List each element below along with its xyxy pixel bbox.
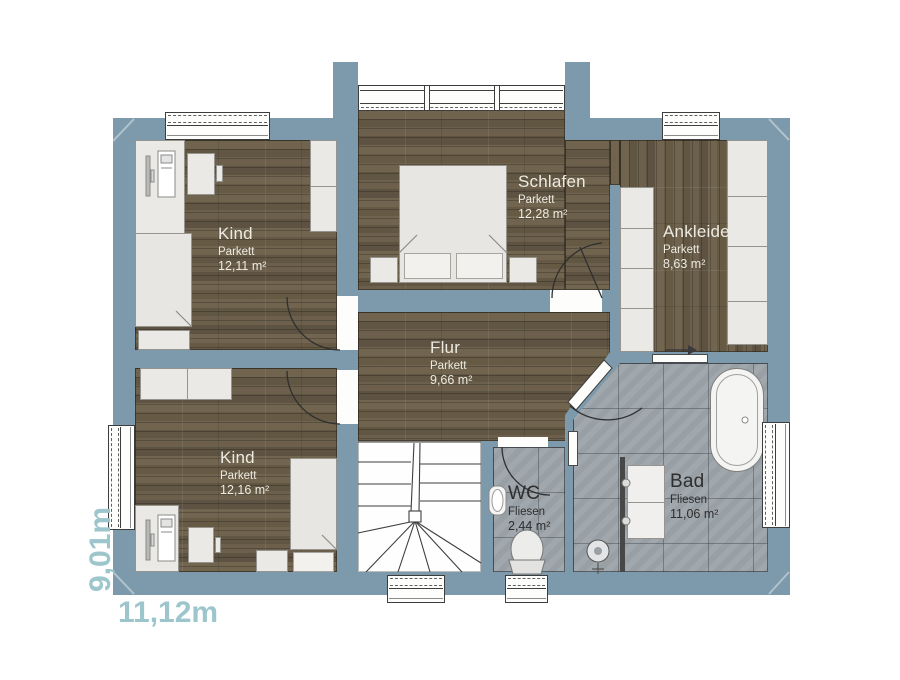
wardrobe-divider bbox=[621, 308, 653, 309]
room-area: 12,11 m² bbox=[218, 259, 266, 274]
desk-table bbox=[187, 153, 215, 195]
room-name: WC bbox=[508, 482, 550, 505]
window bbox=[505, 575, 548, 603]
room-floor-type: Parkett bbox=[430, 359, 472, 373]
window-glass bbox=[664, 125, 718, 136]
chair bbox=[216, 165, 223, 182]
bay-pillar-left bbox=[333, 62, 358, 118]
window-mullion bbox=[424, 86, 430, 110]
room-floor-type: Parkett bbox=[518, 193, 586, 207]
vanity-double-sink bbox=[627, 465, 665, 539]
wardrobe-divider bbox=[621, 228, 653, 229]
roller-shutter bbox=[665, 115, 717, 123]
roller-shutter bbox=[765, 425, 773, 525]
wardrobe bbox=[310, 140, 337, 232]
bed bbox=[135, 233, 192, 327]
room-floor-type: Parkett bbox=[663, 243, 730, 257]
nightstand bbox=[370, 257, 398, 283]
wardrobe-divider bbox=[728, 196, 767, 197]
low-sill bbox=[652, 354, 708, 363]
room-label-schlafen: Schlafen Parkett 12,28 m² bbox=[518, 172, 586, 222]
pillow bbox=[293, 552, 334, 572]
wardrobe-divider bbox=[728, 301, 767, 302]
room-label-wc: WC Fliesen 2,44 m² bbox=[508, 482, 550, 534]
room-name: Kind bbox=[220, 448, 269, 469]
partition-wall bbox=[620, 457, 625, 572]
window-glass bbox=[507, 588, 546, 599]
room-label-kind-2: Kind Parkett 12,16 m² bbox=[220, 448, 269, 498]
room-area: 12,28 m² bbox=[518, 207, 586, 222]
bed bbox=[290, 458, 337, 550]
wardrobe bbox=[727, 140, 768, 345]
bay-pillar-right bbox=[565, 62, 590, 118]
nightstand bbox=[509, 257, 537, 283]
window-glass bbox=[389, 588, 443, 599]
chest bbox=[138, 330, 190, 350]
room-name: Schlafen bbox=[518, 172, 586, 193]
dimension-width-label: 11,12m bbox=[118, 596, 218, 630]
roller-shutter bbox=[168, 115, 267, 123]
room-name: Kind bbox=[218, 224, 266, 245]
room-floor-type: Parkett bbox=[220, 469, 269, 483]
room-area: 9,66 m² bbox=[430, 373, 472, 388]
room-label-bad: Bad Fliesen 11,06 m² bbox=[670, 470, 718, 522]
room-floor-type: Parkett bbox=[218, 245, 266, 259]
window bbox=[165, 112, 270, 140]
passage-schlafen-ankleide bbox=[610, 140, 620, 185]
window bbox=[762, 422, 790, 528]
desk-table bbox=[188, 527, 214, 563]
window bbox=[387, 575, 445, 603]
wardrobe bbox=[140, 368, 232, 400]
roller-shutter bbox=[361, 103, 562, 108]
roller-shutter bbox=[390, 578, 442, 586]
room-area: 11,06 m² bbox=[670, 507, 718, 522]
room-name: Flur bbox=[430, 338, 472, 359]
chair bbox=[215, 537, 221, 553]
wardrobe-divider bbox=[621, 268, 653, 269]
staircase-area bbox=[358, 441, 481, 572]
room-name: Ankleide bbox=[663, 222, 730, 243]
pillow bbox=[404, 253, 451, 279]
nightstand bbox=[256, 550, 288, 572]
window-band bbox=[358, 85, 565, 111]
room-label-ankleide: Ankleide Parkett 8,63 m² bbox=[663, 222, 730, 272]
bathtub-icon bbox=[710, 368, 764, 472]
roller-shutter bbox=[508, 578, 545, 586]
room-floor-type: Fliesen bbox=[508, 505, 550, 519]
floor-plan: Kind Parkett 12,11 m² Schlafen Parkett 1… bbox=[0, 0, 900, 680]
window-glass bbox=[360, 90, 563, 104]
window-glass bbox=[775, 424, 786, 526]
desk bbox=[135, 505, 179, 572]
wardrobe-divider bbox=[187, 369, 188, 399]
vanity-divider bbox=[628, 502, 664, 503]
room-area: 12,16 m² bbox=[220, 483, 269, 498]
room-floor-type: Fliesen bbox=[670, 493, 718, 507]
desk bbox=[135, 140, 185, 238]
room-area: 8,63 m² bbox=[663, 257, 730, 272]
wardrobe bbox=[620, 187, 654, 352]
window-glass bbox=[167, 125, 268, 136]
room-label-kind-1: Kind Parkett 12,11 m² bbox=[218, 224, 266, 274]
pillow bbox=[456, 253, 503, 279]
window bbox=[662, 112, 720, 140]
room-area: 2,44 m² bbox=[508, 519, 550, 534]
wardrobe-divider bbox=[728, 246, 767, 247]
wardrobe-divider bbox=[311, 186, 336, 187]
bathtub-inner bbox=[716, 374, 758, 466]
room-label-flur: Flur Parkett 9,66 m² bbox=[430, 338, 472, 388]
window-glass bbox=[120, 427, 131, 528]
room-name: Bad bbox=[670, 470, 718, 493]
window-mullion bbox=[494, 86, 500, 110]
radiator bbox=[568, 431, 578, 466]
dimension-height-label: 9,01m bbox=[84, 507, 118, 592]
